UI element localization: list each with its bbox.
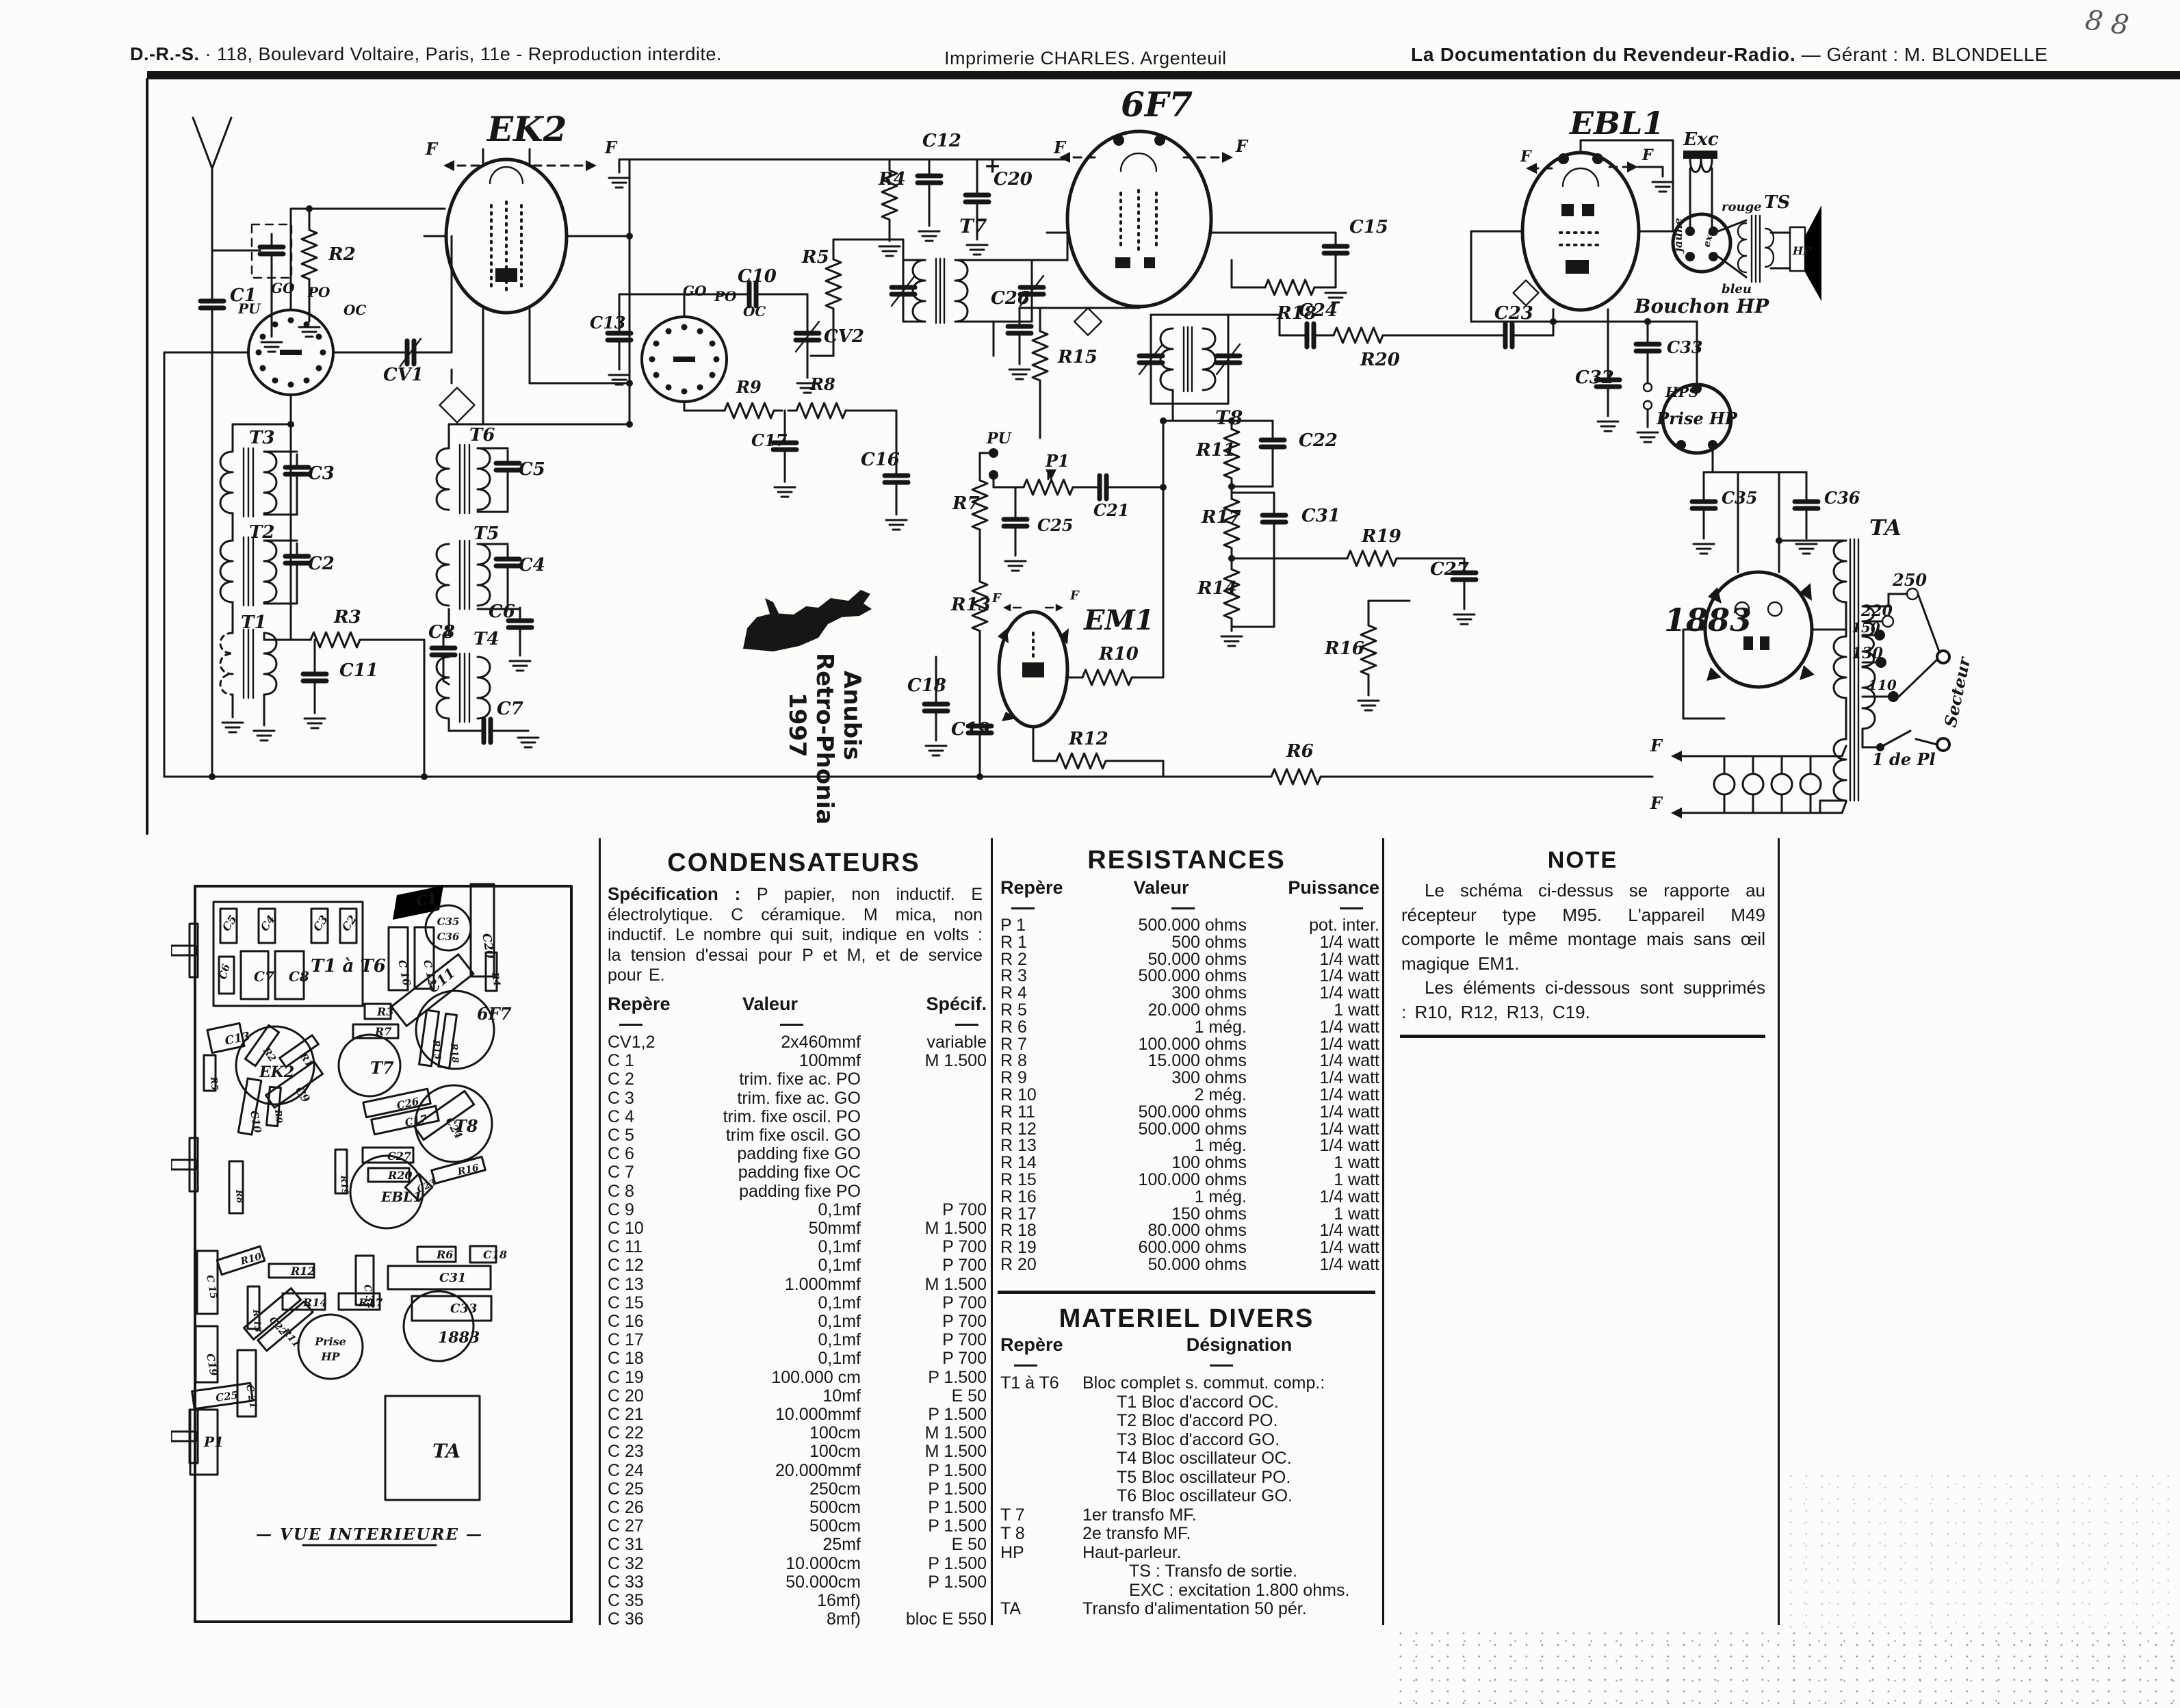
- table-cell: 1/4 watt: [1247, 1137, 1379, 1154]
- schematic-label: HPS: [1665, 384, 1698, 400]
- schematic-label: PO: [307, 284, 330, 300]
- table-row: T 71er transfo MF.: [1000, 1506, 1375, 1525]
- schematic-label: R6: [1286, 741, 1314, 762]
- schematic-label: OC: [743, 303, 766, 320]
- table-cell: 0,1mf: [679, 1294, 861, 1312]
- schematic-label: GO: [683, 283, 707, 299]
- table-cell: C 18: [608, 1349, 679, 1368]
- table-row: C 1050mmfM 1.500: [608, 1219, 983, 1238]
- table-cell: Haut-parleur.: [1082, 1544, 1379, 1563]
- schematic-label: bleu: [1722, 282, 1752, 296]
- schematic-label: R3: [376, 1005, 393, 1018]
- table-cell: 1 watt: [1247, 1206, 1379, 1223]
- table-cell: C 22: [608, 1424, 679, 1442]
- schematic-label: C21: [1093, 500, 1130, 520]
- table-row: C 26500cmP 1.500: [608, 1499, 983, 1517]
- table-row: C 150,1mfP 700: [608, 1294, 983, 1312]
- schematic-label: R4: [489, 971, 502, 987]
- table-cell: 0,1mf: [679, 1312, 861, 1331]
- schematic-label: R12: [290, 1265, 315, 1278]
- condensateurs-table: CV1,22x460mmfvariableC 1100mmfM 1.500C 2…: [608, 1033, 983, 1629]
- table-row: T1 Bloc d'accord OC.: [1000, 1393, 1375, 1412]
- table-cell: C 8: [608, 1182, 679, 1201]
- table-cell: variable: [861, 1033, 987, 1052]
- schematic-label: R18: [448, 1042, 460, 1063]
- table-cell: padding fixe PO: [679, 1182, 861, 1201]
- table-cell: 0,1mf: [679, 1238, 861, 1256]
- table-cell: 20.000 ohms: [1076, 1002, 1247, 1019]
- table-cell: 1 még.: [1076, 1137, 1247, 1154]
- schematic-label: T5: [473, 523, 499, 544]
- table-cell: 10.000mmf: [679, 1406, 861, 1424]
- schematic-label: 6F7: [1121, 84, 1193, 125]
- table-cell: C 19: [608, 1369, 679, 1387]
- table-cell: 500.000 ohms: [1076, 1104, 1247, 1121]
- table-cell: C 21: [608, 1406, 679, 1424]
- table-cell: 25mf: [679, 1536, 861, 1554]
- table-cell: 100 ohms: [1076, 1154, 1247, 1172]
- resistances-title: RESISTANCES: [998, 846, 1375, 875]
- table-cell: C 16: [608, 1312, 679, 1331]
- materiel-table: T1 à T6Bloc complet s. commut. comp.:T1 …: [1000, 1374, 1375, 1619]
- table-cell: [1000, 1393, 1082, 1412]
- schematic-label: R11: [1195, 440, 1236, 461]
- schematic-label: C31: [439, 1271, 466, 1285]
- table-cell: padding fixe GO: [679, 1145, 861, 1163]
- header-dash: [1011, 907, 1035, 909]
- schematic-label: R15: [430, 1039, 443, 1060]
- schematic-label: T4: [473, 629, 499, 649]
- table-cell: 100.000 ohms: [1076, 1172, 1247, 1189]
- table-row: C 170,1mfP 700: [608, 1331, 983, 1349]
- schematic-label: R 13: [250, 1308, 263, 1333]
- table-cell: CV1,2: [608, 1033, 679, 1052]
- condensateurs-title: CONDENSATEURS: [602, 849, 985, 878]
- table-cell: 500.000 ohms: [1076, 1121, 1247, 1138]
- schematic-label: PU: [986, 430, 1013, 448]
- table-cell: C 2: [608, 1070, 679, 1089]
- table-cell: R 15: [1000, 1172, 1076, 1189]
- note-title: NOTE: [1397, 847, 1768, 874]
- schematic-label: C4: [519, 555, 545, 575]
- schematic-label: jaune: [1672, 218, 1685, 254]
- table-row: C 2110.000mmfP 1.500: [608, 1406, 983, 1424]
- table-row: C 110,1mfP 700: [608, 1238, 983, 1256]
- table-row: T1 à T6Bloc complet s. commut. comp.:: [1000, 1374, 1375, 1393]
- schematic-label: F: [1053, 138, 1067, 157]
- table-cell: HP: [1000, 1544, 1082, 1563]
- table-cell: 1/4 watt: [1247, 1036, 1379, 1053]
- table-cell: 1/4 watt: [1247, 1070, 1379, 1087]
- table-cell: 10.000cm: [679, 1555, 861, 1573]
- schematic-label: C35: [437, 916, 460, 928]
- table-cell: T1 Bloc d'accord OC.: [1082, 1393, 1379, 1412]
- table-cell: 100cm: [679, 1442, 861, 1461]
- schematic-label: R8: [809, 374, 835, 394]
- table-row: R 161 még.1/4 watt: [1000, 1189, 1375, 1206]
- table-cell: R 17: [1000, 1206, 1076, 1223]
- table-cell: R 10: [1000, 1087, 1076, 1104]
- schematic-label: C1: [415, 890, 439, 909]
- table-cell: 100.000 cm: [679, 1369, 861, 1387]
- table-row: C 120,1mfP 700: [608, 1256, 983, 1275]
- table-cell: P 700: [861, 1238, 987, 1256]
- schematic-label: EBL1: [380, 1189, 422, 1205]
- table-row: C 3516mf): [608, 1592, 983, 1610]
- table-cell: pot. inter.: [1247, 917, 1379, 934]
- table-cell: P 1.500: [861, 1369, 987, 1387]
- schematic-label: EK2: [486, 109, 567, 149]
- table-cell: EXC : excitation 1.800 ohms.: [1082, 1581, 1379, 1601]
- schematic-label: C 16: [395, 959, 413, 987]
- schematic-label: T2: [249, 522, 274, 543]
- chassis-layout-view: C5C4C3C2C6C7C8T1 à T6C1C35C36C20R4C 16C …: [171, 869, 582, 1642]
- schematic-label: R20: [387, 1169, 413, 1182]
- schematic-label: OC: [343, 302, 366, 318]
- table-row: C 5trim fixe oscil. GO: [608, 1126, 983, 1145]
- schematic-label: PO: [714, 288, 737, 305]
- table-cell: 50.000 ohms: [1076, 951, 1247, 968]
- schematic-label: exc: [1701, 229, 1716, 249]
- header-dash: [619, 1024, 643, 1026]
- schematic-label: C6: [489, 601, 515, 622]
- schematic-label: F: [991, 591, 1002, 606]
- table-row: R 19600.000 ohms1/4 watt: [1000, 1239, 1375, 1256]
- table-cell: 1/4 watt: [1247, 934, 1379, 951]
- schematic-label: Prise: [314, 1335, 346, 1348]
- schematic-label: C8: [428, 622, 455, 643]
- table-cell: 1/4 watt: [1247, 1189, 1379, 1206]
- table-cell: P 700: [861, 1349, 987, 1368]
- table-cell: C 35: [608, 1592, 679, 1610]
- misc-mid: [164, 231, 1697, 784]
- schematic-label: C11: [339, 660, 378, 681]
- table-cell: 1/4 watt: [1247, 1239, 1379, 1256]
- table-cell: C 13: [608, 1276, 679, 1294]
- table-cell: 2x460mmf: [679, 1033, 861, 1052]
- table-cell: M 1.500: [861, 1052, 987, 1070]
- table-row: C 368mf)bloc E 550: [608, 1610, 983, 1629]
- cathode-network-6f7: [1008, 308, 1139, 438]
- chassis-outline: [171, 884, 571, 1622]
- table-row: R 1880.000 ohms1/4 watt: [1000, 1222, 1375, 1239]
- schematic-label: TA: [432, 1440, 460, 1462]
- table-cell: 500cm: [679, 1499, 861, 1517]
- schematic-label: 1883: [438, 1329, 480, 1347]
- schematic-label: R7: [952, 493, 980, 514]
- table-row: R 250.000 ohms1/4 watt: [1000, 951, 1375, 968]
- table-cell: R 4: [1000, 985, 1076, 1002]
- table-row: C 22100cmM 1.500: [608, 1424, 983, 1442]
- table-cell: 1/4 watt: [1247, 1019, 1379, 1036]
- rectifier-1883: [1683, 472, 1845, 719]
- schematic-label: R10: [1098, 644, 1139, 664]
- schematic-label: 220: [1860, 602, 1893, 620]
- table-cell: 500cm: [679, 1517, 861, 1536]
- schematic-label: C16: [861, 450, 900, 470]
- schematic-label: HP: [1792, 244, 1812, 257]
- watermark-text: Retro-Phonia: [811, 653, 838, 825]
- table-cell: R 20: [1000, 1256, 1076, 1273]
- scan-noise: [1396, 1629, 2180, 1705]
- table-cell: R 6: [1000, 1019, 1076, 1036]
- table-cell: R 7: [1000, 1036, 1076, 1053]
- table-row: C 3210.000cmP 1.500: [608, 1555, 983, 1573]
- watermark-animal: [743, 590, 872, 651]
- table-row: TS : Transfo de sortie.: [1000, 1562, 1375, 1581]
- schematic-label: T6: [469, 425, 495, 445]
- table-cell: M 1.500: [861, 1442, 987, 1461]
- table-cell: C 36: [608, 1610, 679, 1629]
- table-cell: 0,1mf: [679, 1331, 861, 1349]
- table-cell: 8mf): [679, 1610, 861, 1629]
- table-cell: T6 Bloc oscillateur GO.: [1082, 1487, 1379, 1506]
- table-row: T4 Bloc oscillateur OC.: [1000, 1449, 1375, 1468]
- schematic-label: C27: [387, 1150, 411, 1163]
- table-cell: P 1: [1000, 917, 1076, 934]
- table-cell: P 1.500: [861, 1499, 987, 1517]
- table-cell: 2e transfo MF.: [1082, 1525, 1379, 1544]
- table-row: C 25250cmP 1.500: [608, 1480, 983, 1499]
- table-cell: P 1.500: [861, 1555, 987, 1573]
- table-cell: 1/4 watt: [1247, 968, 1379, 985]
- table-cell: M 1.500: [861, 1276, 987, 1294]
- table-cell: C 26: [608, 1499, 679, 1517]
- table-cell: 1 watt: [1247, 1002, 1379, 1019]
- schematic-label: rouge: [1722, 200, 1762, 214]
- schematic-label: C22: [1299, 430, 1338, 451]
- table-row: R 15100.000 ohms1 watt: [1000, 1172, 1375, 1189]
- table-row: C 180,1mfP 700: [608, 1349, 983, 1368]
- table-cell: [1000, 1581, 1082, 1601]
- watermark-text: Anubis: [838, 671, 866, 760]
- table-cell: 500.000 ohms: [1076, 917, 1247, 934]
- table-row: C 2010mfE 50: [608, 1387, 983, 1406]
- col-valeur: Valeur: [679, 994, 861, 1015]
- schematic-label: R14: [1197, 578, 1237, 599]
- schematic-label: R14: [302, 1296, 328, 1309]
- table-cell: 20.000mmf: [679, 1462, 861, 1480]
- table-cell: C 11: [608, 1238, 679, 1256]
- table-row: R 520.000 ohms1 watt: [1000, 1002, 1375, 1019]
- schematic-label: F: [1520, 148, 1532, 166]
- schematic-label: Bouchon HP: [1634, 295, 1769, 318]
- table-cell: Bloc complet s. commut. comp.:: [1082, 1374, 1379, 1393]
- schematic-label: F: [1650, 736, 1663, 755]
- table-cell: T5 Bloc oscillateur PO.: [1082, 1468, 1379, 1488]
- table-cell: P 700: [861, 1331, 987, 1349]
- table-cell: 100mmf: [679, 1052, 861, 1070]
- table-cell: P 700: [861, 1294, 987, 1312]
- table-cell: R 16: [1000, 1189, 1076, 1206]
- table-cell: 100cm: [679, 1424, 861, 1442]
- table-cell: 150 ohms: [1076, 1206, 1247, 1223]
- table-cell: [861, 1182, 987, 1201]
- schematic-label: Secteur: [1941, 654, 1975, 729]
- schematic-label: F: [1235, 136, 1249, 156]
- table-row: R 2050.000 ohms1/4 watt: [1000, 1256, 1375, 1273]
- table-cell: [1000, 1412, 1082, 1431]
- schematic-label: R16: [1324, 638, 1364, 659]
- table-cell: 500 ohms: [1076, 934, 1247, 951]
- schematic-label: C17: [404, 1112, 428, 1129]
- schematic-label: R4: [878, 169, 906, 190]
- materiel-title: MATERIEL DIVERS: [998, 1304, 1375, 1334]
- table-cell: T1 à T6: [1000, 1374, 1082, 1393]
- schematic-label: C13: [224, 1030, 252, 1048]
- table-cell: 1/4 watt: [1247, 1052, 1379, 1070]
- table-cell: 600.000 ohms: [1076, 1239, 1247, 1256]
- table-cell: TA: [1000, 1600, 1082, 1619]
- table-row: R 7100.000 ohms1/4 watt: [1000, 1036, 1375, 1053]
- table-cell: [1000, 1468, 1082, 1488]
- schematic-label: T8: [1215, 406, 1243, 429]
- table-cell: R 5: [1000, 1002, 1076, 1019]
- schematic-label: R19: [338, 1174, 350, 1195]
- table-row: C 2trim. fixe ac. PO: [608, 1070, 983, 1089]
- table-row: T3 Bloc d'accord GO.: [1000, 1431, 1375, 1450]
- table-cell: P 1.500: [861, 1480, 987, 1499]
- table-cell: R 1: [1000, 934, 1076, 951]
- schematic-label: HP: [320, 1350, 340, 1363]
- schematic-label: C2: [308, 554, 335, 574]
- column-divider: [599, 838, 601, 1625]
- schematic-label: EBL1: [1568, 105, 1664, 142]
- table-cell: T4 Bloc oscillateur OC.: [1082, 1449, 1379, 1468]
- schematic-label: C36: [1824, 488, 1860, 508]
- detector-avc: [1221, 417, 1476, 646]
- schematic-label: EM1: [1083, 604, 1154, 636]
- table-cell: 16mf): [679, 1592, 861, 1610]
- table-cell: 1 watt: [1247, 1154, 1379, 1172]
- table-cell: 1/4 watt: [1247, 1121, 1379, 1138]
- table-cell: 10mf: [679, 1387, 861, 1406]
- table-cell: 100.000 ohms: [1076, 1036, 1247, 1053]
- schematic-label: C20: [994, 169, 1033, 190]
- schematic-label: C10: [248, 1110, 264, 1135]
- table-cell: [1000, 1449, 1082, 1468]
- tube-ek2: [424, 149, 633, 428]
- schematic-label: R19: [1361, 526, 1401, 547]
- schematic-label: R8: [233, 1189, 245, 1204]
- schematic-label: C27: [1430, 559, 1469, 580]
- schematic-label: Prise HP: [1656, 409, 1738, 428]
- scanned-service-sheet: D.-R.-S. · 118, Boulevard Voltaire, Pari…: [0, 0, 2180, 1708]
- table-cell: P 700: [861, 1256, 987, 1275]
- table-cell: padding fixe OC: [679, 1163, 861, 1182]
- schematic-label: C35: [1722, 488, 1758, 508]
- if-transformer-t8: [1139, 309, 1553, 421]
- table-row: C 23100cmM 1.500: [608, 1442, 983, 1461]
- materiel-header: Repère Désignation: [1000, 1334, 1375, 1356]
- table-cell: C 1: [608, 1052, 679, 1070]
- schematic-label: C15: [1349, 217, 1388, 237]
- schematic-label: T3: [249, 428, 274, 448]
- schematic-label: R5: [801, 247, 829, 268]
- table-row: C 3125mfE 50: [608, 1536, 983, 1554]
- resistances-table: P 1500.000 ohmspot. inter.R 1500 ohms1/4…: [1000, 917, 1375, 1273]
- table-cell: P 1.500: [861, 1406, 987, 1424]
- table-cell: R 14: [1000, 1154, 1076, 1172]
- circuit-schematic: EK26F7EBL1EM11883TATSExcBouchon HPPrise …: [0, 0, 2180, 862]
- table-cell: C 25: [608, 1480, 679, 1499]
- table-row: T2 Bloc d'accord PO.: [1000, 1412, 1375, 1431]
- schematic-label: GO: [271, 280, 295, 296]
- table-row: CV1,22x460mmfvariable: [608, 1033, 983, 1052]
- table-cell: T 7: [1000, 1506, 1082, 1525]
- table-cell: R 9: [1000, 1070, 1076, 1087]
- table-row: C 6padding fixe GO: [608, 1145, 983, 1163]
- table-row: C 27500cmP 1.500: [608, 1517, 983, 1536]
- table-row: P 1500.000 ohmspot. inter.: [1000, 917, 1375, 934]
- input-network: [212, 205, 445, 352]
- table-cell: 0,1mf: [679, 1349, 861, 1368]
- table-cell: C 15: [608, 1294, 679, 1312]
- table-cell: trim fixe oscil. GO: [679, 1126, 861, 1145]
- table-row: T6 Bloc oscillateur GO.: [1000, 1487, 1375, 1506]
- schematic-label: 130: [1852, 645, 1884, 662]
- table-cell: R 8: [1000, 1052, 1076, 1070]
- schematic-label: C12: [922, 131, 961, 151]
- table-cell: R 2: [1000, 951, 1076, 968]
- table-cell: R 11: [1000, 1104, 1076, 1121]
- table-row: R 4300 ohms1/4 watt: [1000, 985, 1375, 1002]
- header-dash: [1171, 907, 1195, 909]
- schematic-label: R16: [456, 1163, 480, 1178]
- table-cell: C 4: [608, 1108, 679, 1126]
- schematic-label: C10: [738, 266, 777, 287]
- table-cell: E 50: [861, 1387, 987, 1406]
- note-body: Le schéma ci-dessus se rapporte au récep…: [1401, 879, 1765, 1024]
- schematic-label: P1: [1045, 451, 1069, 471]
- schematic-label: R9: [272, 1109, 284, 1124]
- table-row: R 12500.000 ohms1/4 watt: [1000, 1121, 1375, 1138]
- schematic-label: Exc: [1683, 129, 1718, 150]
- table-row: R 17150 ohms1 watt: [1000, 1206, 1375, 1223]
- schematic-label: T1: [241, 612, 266, 633]
- table-cell: 1/4 watt: [1247, 1104, 1379, 1121]
- table-cell: C 3: [608, 1089, 679, 1108]
- table-row: EXC : excitation 1.800 ohms.: [1000, 1581, 1375, 1601]
- schematic-label: C5: [519, 459, 545, 480]
- table-cell: 0,1mf: [679, 1256, 861, 1275]
- table-row: T5 Bloc oscillateur PO.: [1000, 1468, 1375, 1488]
- col-specif: Spécif.: [861, 994, 987, 1015]
- col-repere: Repère: [608, 994, 679, 1015]
- table-cell: [861, 1163, 987, 1182]
- schematic-label: TA: [1869, 515, 1902, 541]
- col-puissance: Puissance: [1247, 877, 1379, 898]
- table-row: R 61 még.1/4 watt: [1000, 1019, 1375, 1036]
- tube-ebl1: [1471, 140, 1673, 431]
- note-paragraph-2: Les éléments ci-dessous sont supprimés :…: [1401, 976, 1765, 1024]
- schematic-label: T7: [370, 1058, 394, 1078]
- table-cell: [861, 1070, 987, 1089]
- table-cell: 1 watt: [1247, 1172, 1379, 1189]
- schematic-label: C31: [1301, 506, 1340, 526]
- table-cell: R 19: [1000, 1239, 1076, 1256]
- table-cell: M 1.500: [861, 1424, 987, 1442]
- schematic-label: C18: [483, 1248, 507, 1261]
- table-cell: 250cm: [679, 1480, 861, 1499]
- schematic-label: — VUE INTERIEURE —: [256, 1525, 483, 1544]
- table-cell: Transfo d'alimentation 50 pér.: [1082, 1600, 1379, 1619]
- table-cell: 50.000 ohms: [1076, 1256, 1247, 1273]
- schematic-label: R7: [374, 1025, 391, 1038]
- table-row: C 19100.000 cmP 1.500: [608, 1369, 983, 1387]
- schematic-label: C33: [450, 1302, 477, 1316]
- header-dash: [955, 1024, 978, 1026]
